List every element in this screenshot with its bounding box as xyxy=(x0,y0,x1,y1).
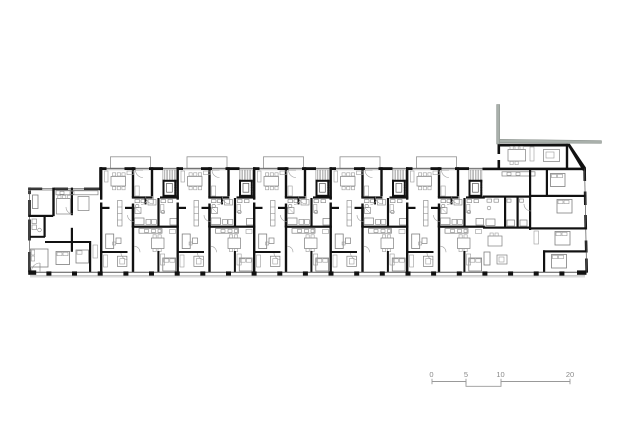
svg-text:10: 10 xyxy=(496,370,504,379)
svg-text:0: 0 xyxy=(429,370,433,379)
svg-text:20: 20 xyxy=(566,370,574,379)
svg-text:5: 5 xyxy=(464,370,468,379)
